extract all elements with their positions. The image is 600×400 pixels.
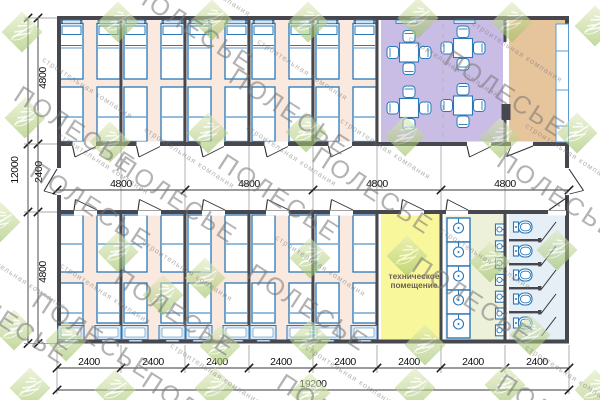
svg-text:2400: 2400: [270, 356, 292, 368]
svg-text:2400: 2400: [462, 356, 484, 368]
svg-text:2400: 2400: [398, 356, 420, 368]
svg-text:4800: 4800: [37, 67, 49, 89]
svg-text:4800: 4800: [37, 261, 49, 283]
svg-text:2400: 2400: [78, 356, 100, 368]
svg-text:12000: 12000: [9, 156, 21, 184]
